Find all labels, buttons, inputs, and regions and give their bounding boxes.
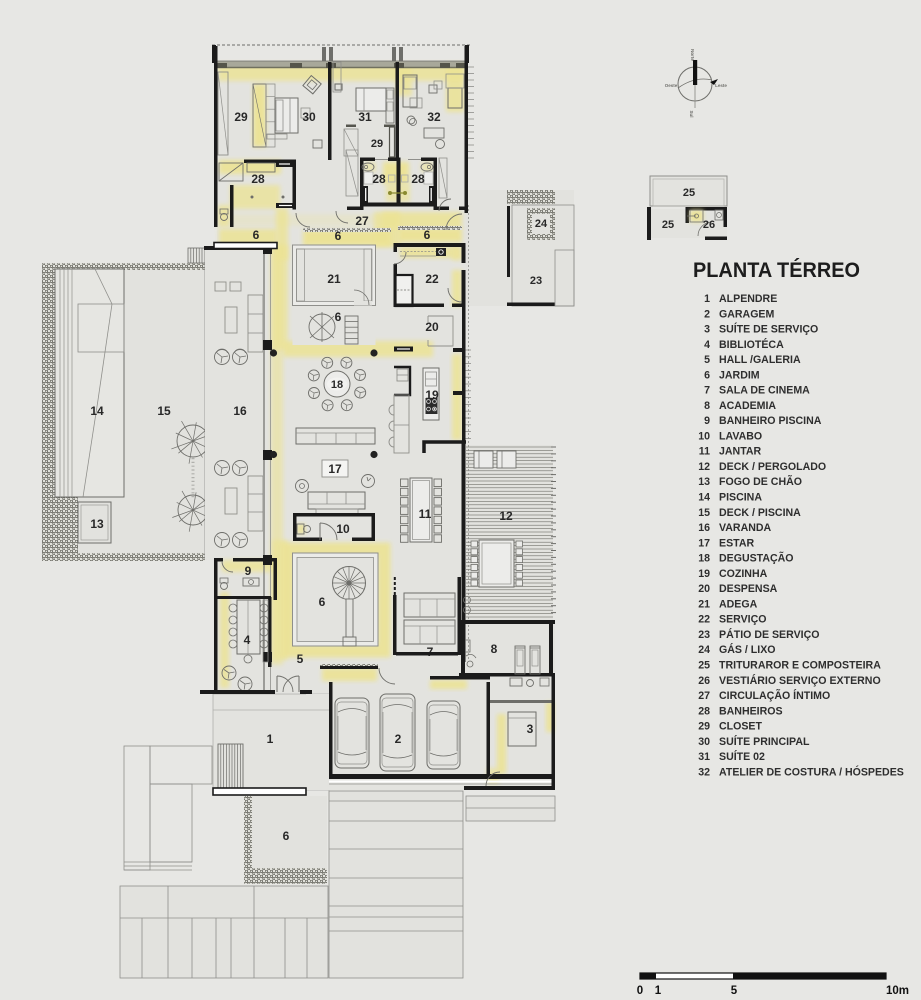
- svg-text:21: 21: [698, 598, 710, 610]
- svg-text:6: 6: [704, 369, 710, 381]
- svg-text:DECK / PISCINA: DECK / PISCINA: [719, 507, 801, 519]
- svg-text:21: 21: [327, 272, 341, 286]
- svg-text:1: 1: [267, 732, 274, 746]
- svg-text:30: 30: [698, 736, 710, 748]
- svg-text:10: 10: [698, 430, 710, 442]
- svg-text:6: 6: [424, 228, 431, 242]
- svg-text:PÁTIO DE SERVIÇO: PÁTIO DE SERVIÇO: [719, 628, 819, 641]
- svg-text:4: 4: [704, 339, 710, 351]
- svg-text:19: 19: [425, 388, 439, 402]
- svg-text:3: 3: [704, 324, 710, 336]
- svg-text:9: 9: [245, 564, 252, 578]
- svg-text:JARDIM: JARDIM: [719, 369, 760, 381]
- svg-text:CIRCULAÇÃO ÍNTIMO: CIRCULAÇÃO ÍNTIMO: [719, 689, 830, 702]
- svg-text:ACADEMIA: ACADEMIA: [719, 400, 776, 412]
- svg-text:SUÍTE 02: SUÍTE 02: [719, 750, 765, 763]
- svg-text:2: 2: [704, 308, 710, 320]
- svg-text:22: 22: [698, 614, 710, 626]
- svg-text:10: 10: [336, 522, 350, 536]
- svg-text:31: 31: [358, 110, 372, 124]
- svg-text:5: 5: [704, 354, 710, 366]
- svg-text:6: 6: [253, 228, 260, 242]
- svg-text:18: 18: [331, 379, 343, 391]
- svg-text:CLOSET: CLOSET: [719, 721, 762, 733]
- svg-text:4: 4: [244, 633, 251, 647]
- svg-text:5: 5: [297, 652, 304, 666]
- svg-text:1: 1: [704, 293, 710, 305]
- svg-text:32: 32: [698, 766, 710, 778]
- svg-text:GARAGEM: GARAGEM: [719, 308, 774, 320]
- svg-text:22: 22: [425, 272, 439, 286]
- svg-text:26: 26: [698, 675, 710, 687]
- svg-text:GÁS / LIXO: GÁS / LIXO: [719, 643, 776, 656]
- svg-text:29: 29: [371, 138, 383, 150]
- svg-text:ATELIER DE COSTURA / HÓSPEDES: ATELIER DE COSTURA / HÓSPEDES: [719, 765, 904, 778]
- svg-text:ESTAR: ESTAR: [719, 537, 754, 549]
- svg-text:6: 6: [335, 310, 342, 324]
- svg-text:HALL /GALERIA: HALL /GALERIA: [719, 354, 801, 366]
- svg-text:BIBLIOTÉCA: BIBLIOTÉCA: [719, 338, 784, 351]
- svg-text:DEGUSTAÇÃO: DEGUSTAÇÃO: [719, 552, 794, 565]
- svg-text:16: 16: [698, 522, 710, 534]
- svg-text:30: 30: [302, 110, 316, 124]
- svg-text:1: 1: [655, 985, 662, 997]
- svg-text:6: 6: [319, 595, 326, 609]
- svg-text:Sul: Sul: [689, 110, 694, 117]
- svg-text:Leste: Leste: [715, 83, 727, 88]
- svg-text:13: 13: [90, 517, 104, 531]
- svg-text:17: 17: [698, 537, 710, 549]
- svg-text:20: 20: [425, 320, 439, 334]
- svg-text:SUÍTE DE SERVIÇO: SUÍTE DE SERVIÇO: [719, 323, 818, 336]
- svg-text:14: 14: [698, 492, 710, 504]
- svg-text:DECK / PERGOLADO: DECK / PERGOLADO: [719, 461, 826, 473]
- svg-text:28: 28: [411, 172, 425, 186]
- svg-text:12: 12: [499, 509, 513, 523]
- svg-text:29: 29: [698, 721, 710, 733]
- svg-text:JANTAR: JANTAR: [719, 446, 762, 458]
- svg-text:28: 28: [698, 705, 710, 717]
- svg-text:FOGO DE CHÃO: FOGO DE CHÃO: [719, 475, 802, 488]
- svg-text:15: 15: [157, 404, 171, 418]
- svg-text:13: 13: [698, 476, 710, 488]
- svg-text:25: 25: [662, 219, 674, 231]
- svg-text:19: 19: [698, 568, 710, 580]
- svg-text:29: 29: [234, 110, 248, 124]
- svg-text:24: 24: [535, 218, 548, 230]
- svg-text:Oeste: Oeste: [665, 83, 678, 88]
- svg-text:ALPENDRE: ALPENDRE: [719, 293, 777, 305]
- svg-text:31: 31: [698, 751, 710, 763]
- svg-text:14: 14: [90, 404, 104, 418]
- svg-text:7: 7: [704, 385, 710, 397]
- svg-text:8: 8: [704, 400, 710, 412]
- svg-text:TRITURAROR E COMPOSTEIRA: TRITURAROR E COMPOSTEIRA: [719, 660, 881, 672]
- svg-text:DESPENSA: DESPENSA: [719, 583, 778, 595]
- svg-text:18: 18: [698, 553, 710, 565]
- svg-text:27: 27: [698, 690, 710, 702]
- svg-text:LAVABO: LAVABO: [719, 430, 762, 442]
- svg-text:2: 2: [395, 732, 402, 746]
- svg-text:11: 11: [699, 446, 710, 458]
- svg-text:6: 6: [335, 229, 342, 243]
- svg-text:VARANDA: VARANDA: [719, 522, 772, 534]
- svg-text:SERVIÇO: SERVIÇO: [719, 614, 767, 626]
- svg-text:24: 24: [698, 644, 710, 656]
- svg-text:9: 9: [704, 415, 710, 427]
- svg-text:5: 5: [731, 985, 738, 997]
- svg-text:SUÍTE PRINCIPAL: SUÍTE PRINCIPAL: [719, 735, 810, 748]
- svg-text:3: 3: [527, 722, 534, 736]
- svg-text:25: 25: [698, 660, 710, 672]
- svg-text:26: 26: [703, 219, 715, 231]
- svg-text:16: 16: [233, 404, 247, 418]
- svg-text:SALA DE CINEMA: SALA DE CINEMA: [719, 385, 810, 397]
- svg-text:11: 11: [419, 507, 432, 521]
- svg-text:PISCINA: PISCINA: [719, 492, 762, 504]
- svg-text:20: 20: [698, 583, 710, 595]
- svg-text:BANHEIROS: BANHEIROS: [719, 705, 783, 717]
- svg-text:27: 27: [355, 214, 369, 228]
- svg-text:17: 17: [328, 462, 342, 476]
- svg-text:23: 23: [530, 275, 542, 287]
- svg-text:12: 12: [698, 461, 710, 473]
- svg-text:Norte: Norte: [690, 49, 695, 61]
- svg-text:23: 23: [698, 629, 710, 641]
- svg-text:15: 15: [698, 507, 710, 519]
- svg-text:10m: 10m: [886, 985, 909, 997]
- svg-text:8: 8: [491, 642, 498, 656]
- svg-text:28: 28: [372, 172, 386, 186]
- svg-text:VESTIÁRIO SERVIÇO EXTERNO: VESTIÁRIO SERVIÇO EXTERNO: [719, 674, 881, 687]
- svg-text:ADEGA: ADEGA: [719, 598, 758, 610]
- svg-text:32: 32: [427, 110, 441, 124]
- svg-text:25: 25: [683, 187, 695, 199]
- svg-text:6: 6: [283, 829, 290, 843]
- svg-text:0: 0: [637, 985, 643, 997]
- svg-text:BANHEIRO PISCINA: BANHEIRO PISCINA: [719, 415, 822, 427]
- svg-text:COZINHA: COZINHA: [719, 568, 768, 580]
- svg-text:28: 28: [251, 172, 265, 186]
- svg-text:PLANTA TÉRREO: PLANTA TÉRREO: [693, 259, 860, 282]
